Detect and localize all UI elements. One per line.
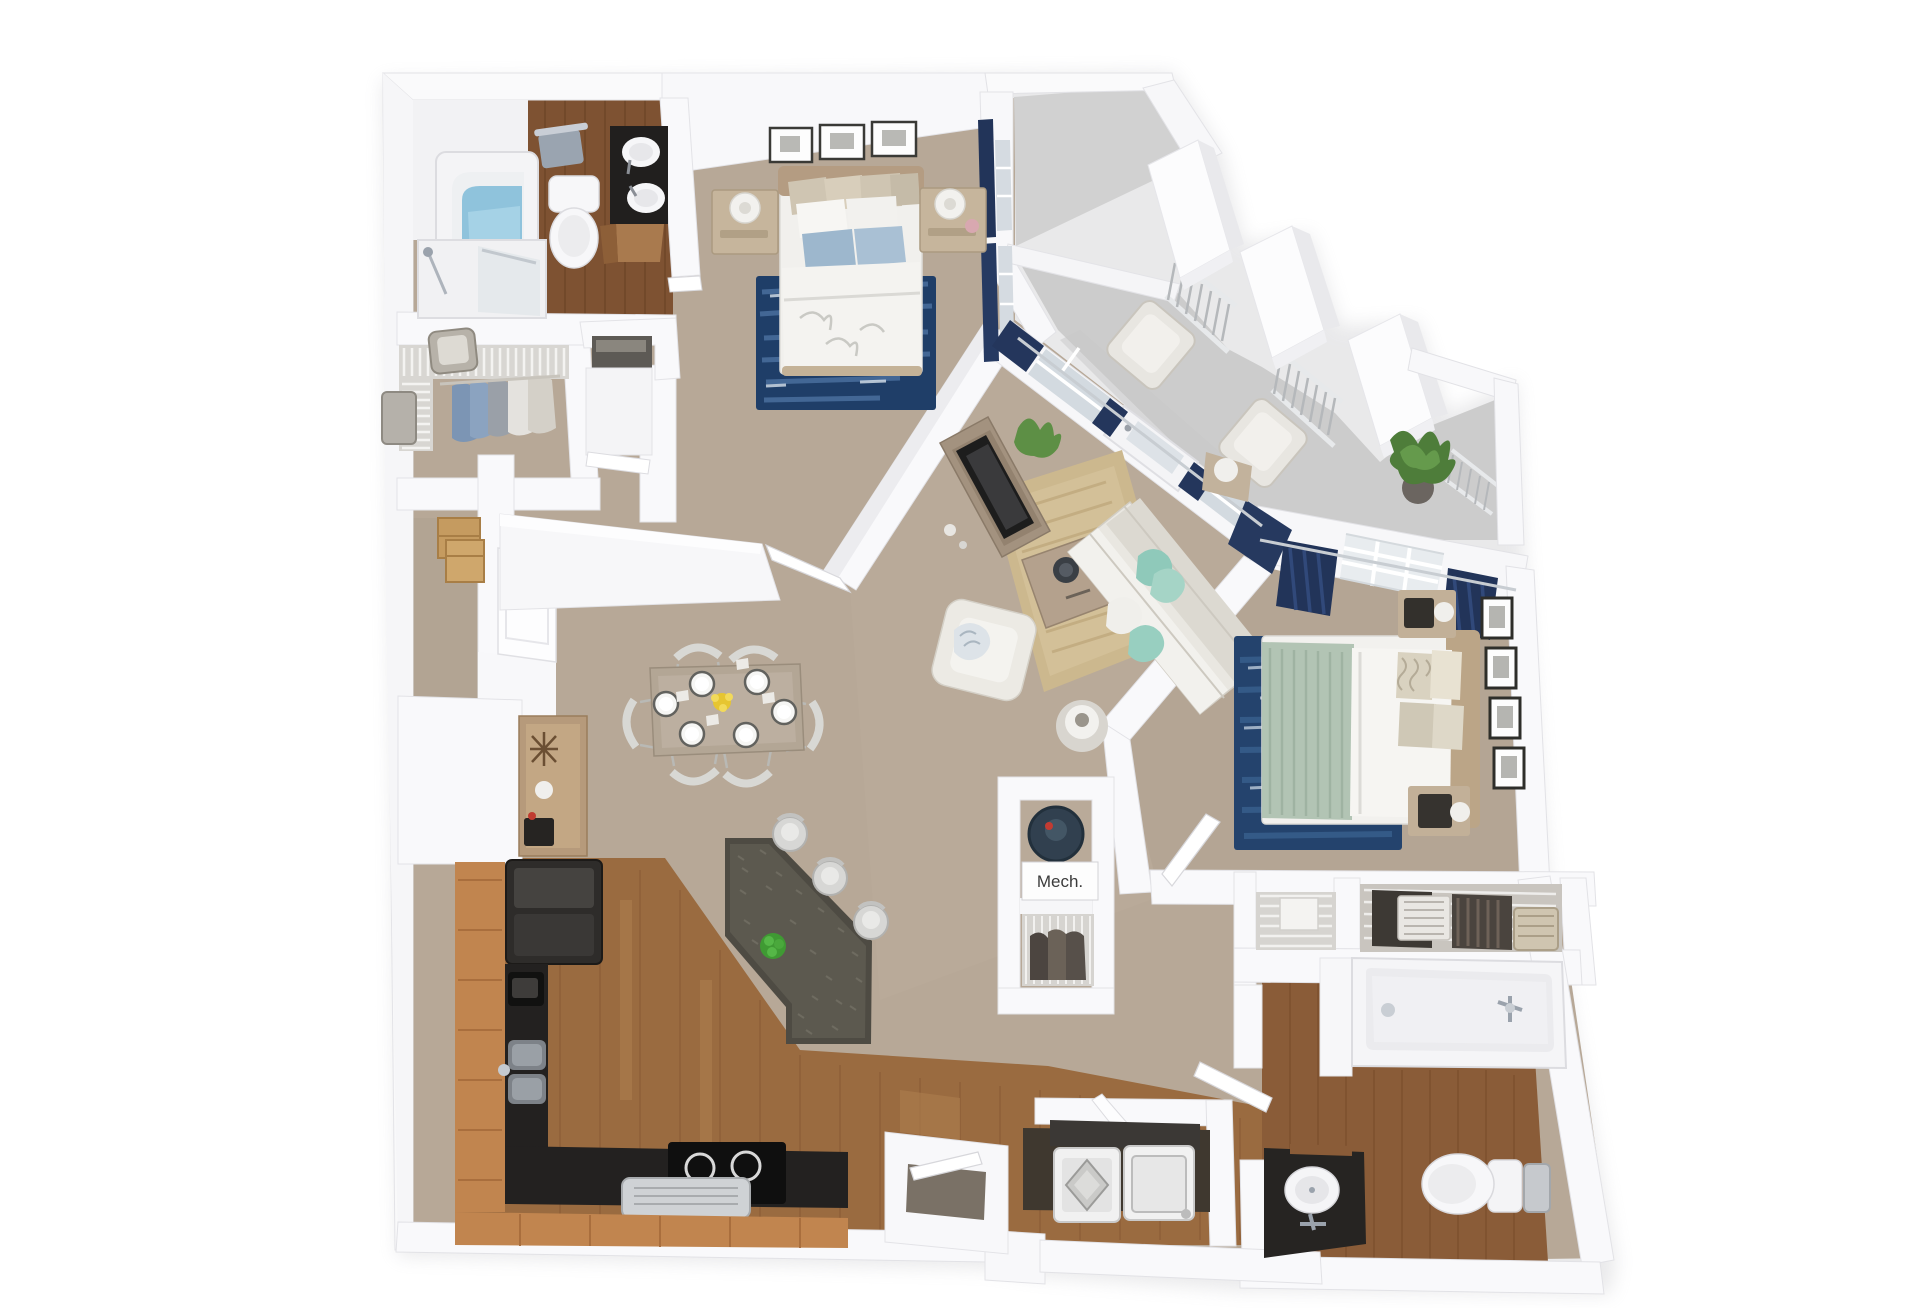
svg-text:Mech.: Mech. — [1037, 872, 1083, 891]
